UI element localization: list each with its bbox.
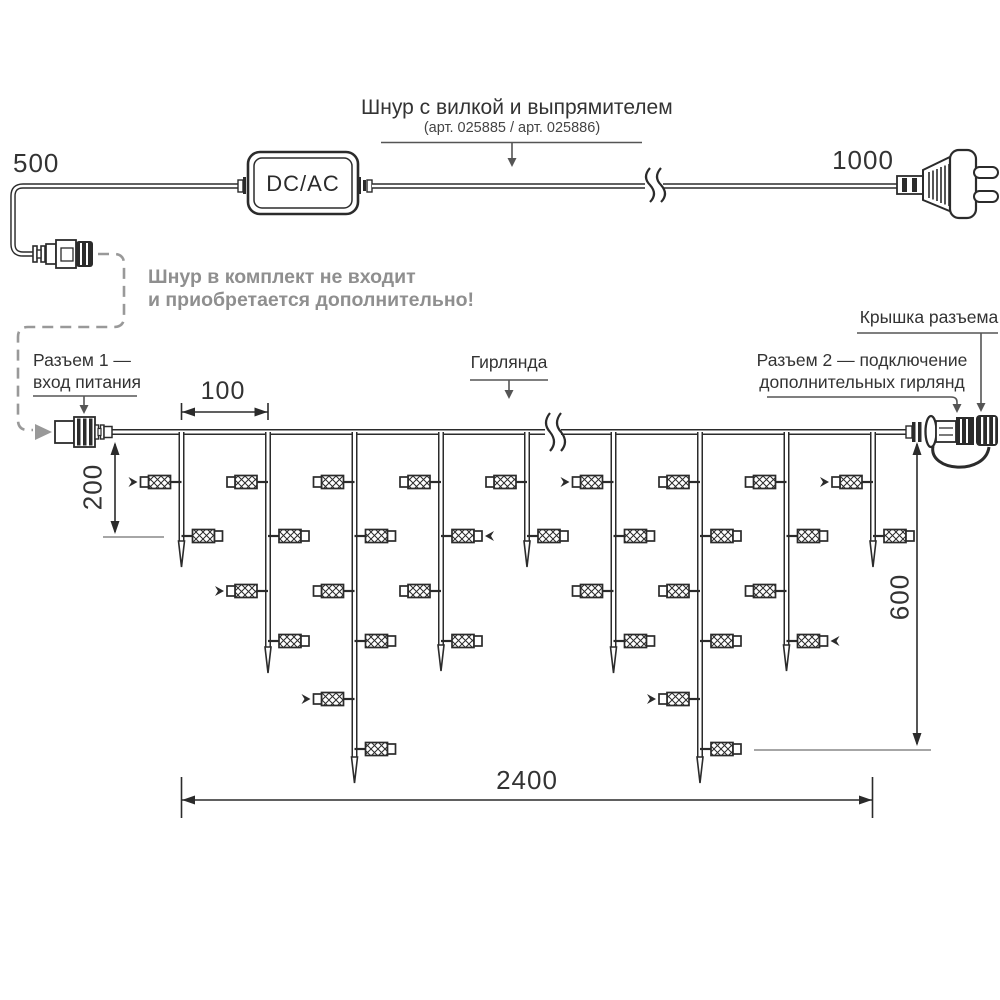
lamp-icon [659,585,700,598]
lamp-icon [787,635,828,648]
drop-tip [784,645,790,671]
lamp-icon [141,476,182,489]
drop-tip [438,645,444,671]
input-connector-icon [55,417,112,447]
drop-9 [832,432,914,567]
drop-2 [227,432,309,673]
connector1-label: Разъем 1 — вход питания [33,350,141,393]
lamp-icon [314,693,355,706]
cap-label: Крышка разъема [839,307,1000,329]
garland-assembly [55,413,998,783]
drop-tip [697,757,703,783]
adapter-label: DC/AC [253,171,353,197]
leader-connector1 [33,396,137,414]
lamp-icon [873,530,914,543]
lamp-icon [441,635,482,648]
lamp-icon [400,585,441,598]
lamp-icon [614,635,655,648]
leader-cord-title [381,143,642,168]
connector1-line-1: Разъем 1 — [33,350,141,372]
cap-leash [933,446,989,467]
dim-200 [103,442,164,537]
note-line-1: Шнур в комплект не входит [148,266,474,289]
lamp-icon [832,476,873,489]
blink-arrow-right-icon [647,694,656,704]
lamp-icon [700,530,741,543]
lamp-icon [573,585,614,598]
drop-5 [486,432,568,567]
lamp-icon [614,530,655,543]
blink-arrow-right-icon [561,477,570,487]
lamp-icon [227,476,268,489]
blink-arrow-left-icon [485,531,494,541]
lamp-icon [486,476,527,489]
lamp-icon [355,530,396,543]
lamp-icon [659,476,700,489]
dim-500-label: 500 [13,148,73,179]
output-connector-icon [906,416,974,447]
arrow-down-icon [508,158,517,167]
lamp-icon [441,530,482,543]
power-plug-icon [897,150,998,218]
arrow-down-icon [977,403,986,412]
connector1-line-2: вход питания [33,372,141,394]
garland-drops [129,432,915,783]
leader-connector2 [767,397,962,413]
dim-1000-label: 1000 [828,145,898,176]
dim-200-label: 200 [78,464,109,510]
drop-8 [746,432,828,671]
drop-tip [870,541,876,567]
blink-arrow-right-icon [820,477,829,487]
note-text: Шнур в комплект не входит и приобретаетс… [148,266,474,312]
lamp-icon [700,743,741,756]
lamp-icon [659,693,700,706]
drop-tip [611,647,617,673]
connector2-line-2: дополнительных гирлянд [752,372,972,394]
blink-arrow-right-icon [302,694,311,704]
garland-label: Гирлянда [449,352,569,374]
arrow-down-icon [80,405,89,414]
dashed-arrow-icon [35,424,52,440]
lamp-icon [700,635,741,648]
cord-subtitle: (арт. 025885 / арт. 025886) [382,120,642,136]
diagram-canvas: 500 1000 Шнур с вилкой и выпрямителем (а… [0,0,1000,1000]
drop-tip [179,541,185,567]
dashed-route [18,254,124,440]
drop-tip [352,757,358,783]
lamp-icon [182,530,223,543]
lamp-icon [746,476,787,489]
lamp-icon [227,585,268,598]
lamp-icon [355,743,396,756]
lamp-icon [787,530,828,543]
cord-title: Шнур с вилкой и выпрямителем [361,96,661,120]
connector2-label: Разъем 2 — подключение дополнительных ги… [752,350,972,393]
note-line-2: и приобретается дополнительно! [148,289,474,312]
arrow-down-icon [505,390,514,399]
lamp-icon [400,476,441,489]
lamp-icon [268,635,309,648]
garland-break-icon [546,413,565,451]
lamp-icon [573,476,614,489]
drop-tip [524,541,530,567]
drop-1 [141,432,223,567]
drop-4 [400,432,482,671]
lamp-icon [527,530,568,543]
drop-3 [314,432,396,783]
drop-tip [265,647,271,673]
dc-plug-connector-icon [33,240,93,268]
drop-6 [573,432,655,673]
blink-arrow-right-icon [215,586,224,596]
blink-arrow-left-icon [831,636,840,646]
dim-100-label: 100 [193,377,253,406]
drop-7 [659,432,741,783]
cord-break-icon [646,168,665,202]
dim-2400-label: 2400 [477,765,577,796]
lamp-icon [268,530,309,543]
connector2-line-1: Разъем 2 — подключение [752,350,972,372]
blink-arrow-right-icon [129,477,138,487]
lamp-icon [314,476,355,489]
lamp-icon [746,585,787,598]
lamp-icon [314,585,355,598]
leader-garland [470,380,548,399]
dim-600-label: 600 [885,574,916,620]
lamp-icon [355,635,396,648]
arrow-down-icon [953,404,962,413]
